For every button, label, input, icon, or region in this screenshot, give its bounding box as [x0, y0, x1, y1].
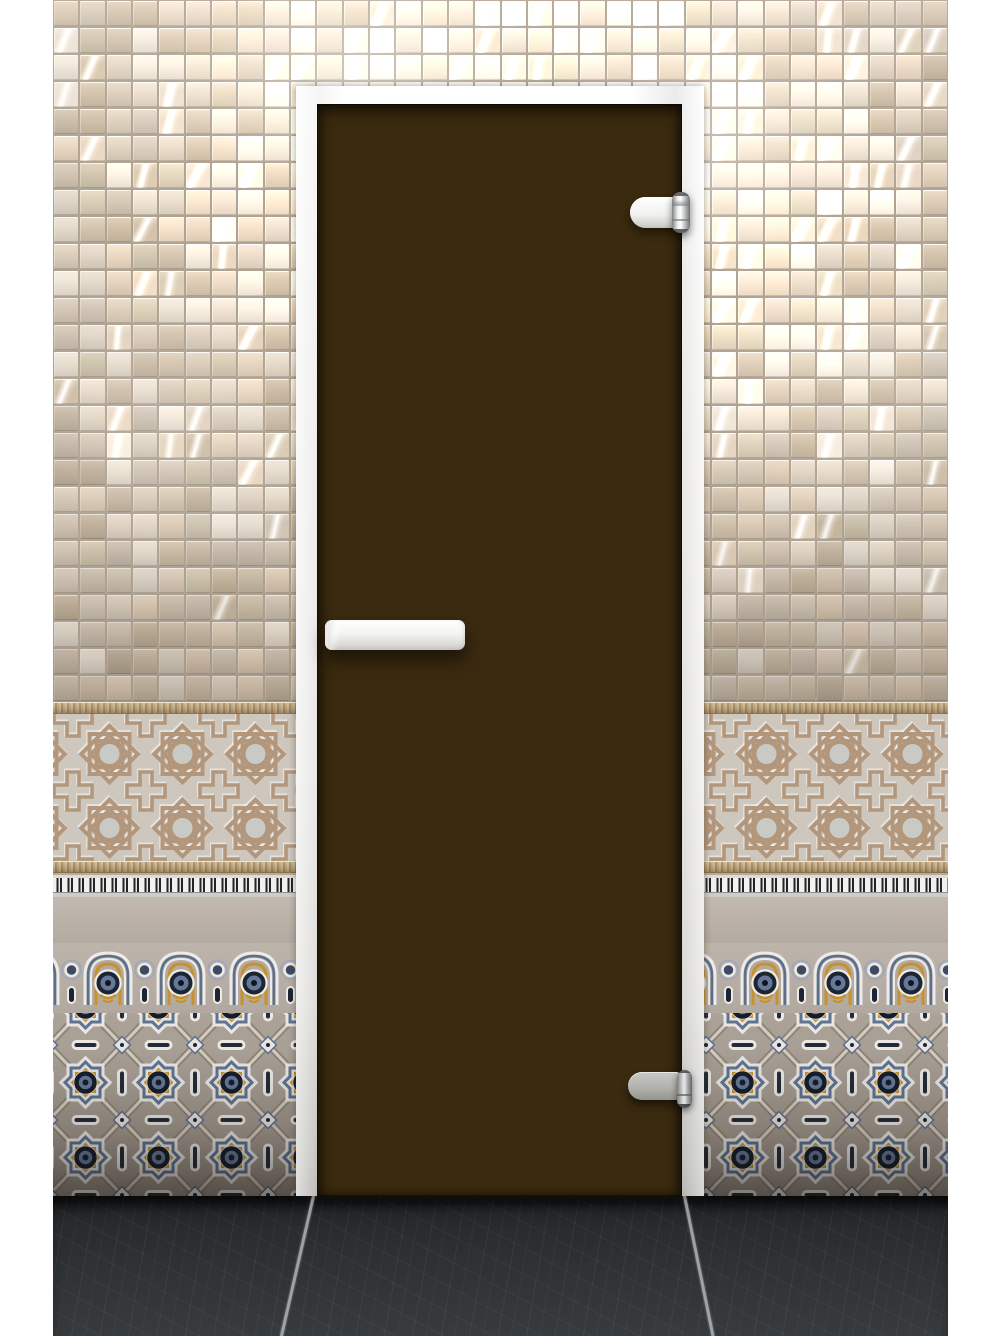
mosaic-tile [80, 82, 104, 107]
mosaic-tile [344, 28, 368, 53]
mosaic-tile [923, 514, 947, 539]
mosaic-tile [896, 109, 920, 134]
mosaic-tile [107, 217, 131, 242]
mosaic-tile [265, 352, 289, 377]
mosaic-tile [817, 649, 841, 674]
mosaic-tile [765, 55, 789, 80]
mosaic-tile [738, 406, 762, 431]
mosaic-tile [133, 298, 157, 323]
mosaic-tile [686, 1, 710, 26]
mosaic-tile [107, 514, 131, 539]
mosaic-tile [186, 352, 210, 377]
mosaic-tile [870, 28, 894, 53]
mosaic-tile [817, 568, 841, 593]
interior-photo [53, 0, 948, 1336]
mosaic-tile [107, 541, 131, 566]
mosaic-tile [844, 406, 868, 431]
mosaic-tile [133, 487, 157, 512]
mosaic-tile [738, 1, 762, 26]
mosaic-tile [54, 217, 78, 242]
mosaic-tile [923, 460, 947, 485]
mosaic-tile [817, 163, 841, 188]
glass-door [296, 86, 704, 1196]
mosaic-tile [107, 1, 131, 26]
mosaic-tile [212, 622, 236, 647]
mosaic-tile [54, 163, 78, 188]
mosaic-tile [80, 55, 104, 80]
mosaic-tile [765, 163, 789, 188]
mosaic-tile [159, 433, 183, 458]
mosaic-tile [238, 676, 262, 701]
mosaic-tile [738, 676, 762, 701]
mosaic-tile [54, 352, 78, 377]
mosaic-tile [791, 28, 815, 53]
hinge-top-barrel [672, 192, 690, 233]
mosaic-tile [54, 1, 78, 26]
mosaic-tile [212, 163, 236, 188]
mosaic-tile [133, 55, 157, 80]
mosaic-tile [712, 136, 736, 161]
mosaic-tile [712, 676, 736, 701]
mosaic-tile [844, 568, 868, 593]
mosaic-tile [159, 514, 183, 539]
mosaic-tile [238, 1, 262, 26]
mosaic-tile [870, 514, 894, 539]
mosaic-tile [738, 622, 762, 647]
hinge-top-clamp [630, 197, 676, 228]
mosaic-tile [817, 379, 841, 404]
mosaic-tile [238, 271, 262, 296]
slate-floor [53, 1196, 948, 1336]
mosaic-tile [54, 487, 78, 512]
mosaic-tile [712, 1, 736, 26]
mosaic-tile [791, 298, 815, 323]
mosaic-tile [186, 541, 210, 566]
mosaic-tile [791, 190, 815, 215]
mosaic-tile [186, 28, 210, 53]
mosaic-tile [870, 109, 894, 134]
mosaic-tile [712, 514, 736, 539]
mosaic-tile [133, 460, 157, 485]
mosaic-tile [712, 595, 736, 620]
mosaic-tile [870, 676, 894, 701]
mosaic-tile [765, 82, 789, 107]
mosaic-tile [80, 136, 104, 161]
mosaic-tile [317, 1, 341, 26]
mosaic-tile [712, 541, 736, 566]
mosaic-tile [817, 82, 841, 107]
mosaic-tile [712, 460, 736, 485]
mosaic-tile [765, 568, 789, 593]
mosaic-tile [212, 325, 236, 350]
mosaic-tile [54, 379, 78, 404]
mosaic-tile [133, 595, 157, 620]
mosaic-tile [923, 190, 947, 215]
mosaic-tile [765, 460, 789, 485]
mosaic-tile [580, 55, 604, 80]
mosaic-tile [317, 28, 341, 53]
hinge-bottom-clamp [628, 1072, 680, 1100]
mosaic-tile [791, 433, 815, 458]
mosaic-tile [186, 55, 210, 80]
mosaic-tile [159, 676, 183, 701]
mosaic-tile [712, 622, 736, 647]
mosaic-tile [712, 406, 736, 431]
photo-canvas [0, 0, 1000, 1340]
mosaic-tile [791, 460, 815, 485]
mosaic-tile [738, 487, 762, 512]
mosaic-tile [817, 541, 841, 566]
mosaic-tile [80, 271, 104, 296]
mosaic-tile [896, 460, 920, 485]
mosaic-tile [186, 649, 210, 674]
mosaic-tile [502, 55, 526, 80]
mosaic-tile [238, 622, 262, 647]
mosaic-tile [791, 676, 815, 701]
mosaic-tile [238, 55, 262, 80]
mosaic-tile [265, 514, 289, 539]
mosaic-tile [817, 298, 841, 323]
mosaic-tile [54, 676, 78, 701]
mosaic-tile [791, 622, 815, 647]
mosaic-tile [791, 352, 815, 377]
mosaic-tile [844, 271, 868, 296]
mosaic-tile [580, 28, 604, 53]
mosaic-tile [186, 595, 210, 620]
mosaic-tile [633, 1, 657, 26]
mosaic-tile [528, 28, 552, 53]
mosaic-tile [54, 568, 78, 593]
mosaic-tile [133, 622, 157, 647]
mosaic-tile [80, 244, 104, 269]
mosaic-tile [291, 55, 315, 80]
mosaic-tile [133, 28, 157, 53]
mosaic-tile [896, 433, 920, 458]
mosaic-tile [238, 595, 262, 620]
mosaic-tile [923, 433, 947, 458]
mosaic-tile [370, 1, 394, 26]
mosaic-tile [896, 136, 920, 161]
mosaic-tile [133, 514, 157, 539]
mosaic-tile [712, 379, 736, 404]
mosaic-tile [54, 190, 78, 215]
mosaic-tile [817, 28, 841, 53]
mosaic-tile [265, 298, 289, 323]
mosaic-tile [265, 1, 289, 26]
mosaic-tile [212, 82, 236, 107]
mosaic-tile [844, 514, 868, 539]
mosaic-tile [686, 28, 710, 53]
mosaic-tile [738, 433, 762, 458]
mosaic-tile [896, 649, 920, 674]
mosaic-tile [212, 649, 236, 674]
mosaic-tile [791, 649, 815, 674]
mosaic-tile [80, 190, 104, 215]
mosaic-tile [923, 217, 947, 242]
mosaic-tile [107, 28, 131, 53]
mosaic-tile [870, 82, 894, 107]
mosaic-tile [923, 379, 947, 404]
mosaic-tile [738, 28, 762, 53]
mosaic-tile [896, 1, 920, 26]
mosaic-tile [765, 595, 789, 620]
mosaic-tile [159, 28, 183, 53]
mosaic-tile [265, 541, 289, 566]
mosaic-tile [107, 298, 131, 323]
mosaic-tile [159, 136, 183, 161]
mosaic-tile [212, 568, 236, 593]
mosaic-tile [186, 487, 210, 512]
mosaic-tile [133, 82, 157, 107]
mosaic-tile [238, 649, 262, 674]
mosaic-tile [212, 460, 236, 485]
mosaic-tile [212, 28, 236, 53]
mosaic-tile [870, 271, 894, 296]
mosaic-tile [54, 109, 78, 134]
mosaic-tile [80, 298, 104, 323]
mosaic-tile [738, 109, 762, 134]
mosaic-tile [923, 82, 947, 107]
mosaic-tile [896, 595, 920, 620]
mosaic-tile [159, 325, 183, 350]
mosaic-tile [159, 109, 183, 134]
mosaic-tile [212, 352, 236, 377]
mosaic-tile [765, 649, 789, 674]
mosaic-tile [107, 379, 131, 404]
mosaic-tile [238, 244, 262, 269]
mosaic-tile [80, 379, 104, 404]
floor-grout-line-right [683, 1196, 714, 1336]
mosaic-tile [870, 406, 894, 431]
mosaic-tile [712, 487, 736, 512]
mosaic-tile [107, 163, 131, 188]
mosaic-tile [186, 163, 210, 188]
mosaic-tile [738, 190, 762, 215]
mosaic-tile [896, 352, 920, 377]
mosaic-tile [186, 379, 210, 404]
mosaic-tile [265, 622, 289, 647]
mosaic-tile [791, 595, 815, 620]
mosaic-tile [423, 55, 447, 80]
mosaic-tile [765, 244, 789, 269]
mosaic-tile [186, 190, 210, 215]
mosaic-tile [765, 352, 789, 377]
door-handle [325, 620, 465, 650]
mosaic-tile [54, 514, 78, 539]
mosaic-tile [738, 217, 762, 242]
mosaic-tile [896, 379, 920, 404]
mosaic-tile [844, 298, 868, 323]
mosaic-tile [80, 541, 104, 566]
mosaic-tile [765, 622, 789, 647]
mosaic-tile [844, 460, 868, 485]
mosaic-tile [265, 271, 289, 296]
mosaic-tile [238, 379, 262, 404]
mosaic-tile [765, 190, 789, 215]
mosaic-tile [765, 514, 789, 539]
mosaic-tile [107, 487, 131, 512]
mosaic-tile [765, 109, 789, 134]
mosaic-tile [844, 55, 868, 80]
mosaic-tile [107, 190, 131, 215]
mosaic-tile [159, 352, 183, 377]
mosaic-tile [844, 433, 868, 458]
mosaic-tile [265, 28, 289, 53]
mosaic-tile [923, 55, 947, 80]
mosaic-tile [238, 325, 262, 350]
mosaic-tile [54, 433, 78, 458]
mosaic-tile [870, 487, 894, 512]
mosaic-tile [107, 649, 131, 674]
mosaic-tile [54, 460, 78, 485]
mosaic-tile [896, 622, 920, 647]
mosaic-tile [212, 406, 236, 431]
mosaic-tile [238, 352, 262, 377]
mosaic-tile [870, 541, 894, 566]
mosaic-tile [844, 190, 868, 215]
mosaic-tile [633, 28, 657, 53]
mosaic-tile [133, 352, 157, 377]
mosaic-tile [107, 244, 131, 269]
mosaic-tile [870, 352, 894, 377]
mosaic-tile [633, 55, 657, 80]
mosaic-tile [844, 676, 868, 701]
mosaic-tile [159, 1, 183, 26]
mosaic-tile [817, 514, 841, 539]
mosaic-tile [817, 271, 841, 296]
mosaic-tile [212, 190, 236, 215]
mosaic-tile [449, 55, 473, 80]
mosaic-tile [80, 109, 104, 134]
mosaic-tile [133, 271, 157, 296]
mosaic-tile [265, 136, 289, 161]
mosaic-tile [896, 676, 920, 701]
mosaic-tile [554, 1, 578, 26]
mosaic-tile [133, 541, 157, 566]
mosaic-tile [738, 352, 762, 377]
mosaic-tile [765, 136, 789, 161]
mosaic-tile [844, 82, 868, 107]
mosaic-tile [475, 28, 499, 53]
mosaic-tile [844, 595, 868, 620]
mosaic-tile [765, 676, 789, 701]
mosaic-tile [817, 595, 841, 620]
mosaic-tile [844, 28, 868, 53]
mosaic-tile [923, 406, 947, 431]
mosaic-tile [291, 28, 315, 53]
mosaic-tile [133, 325, 157, 350]
mosaic-tile [396, 55, 420, 80]
mosaic-tile [54, 298, 78, 323]
mosaic-tile [238, 460, 262, 485]
mosaic-tile [54, 595, 78, 620]
mosaic-tile [238, 433, 262, 458]
mosaic-tile [923, 163, 947, 188]
mosaic-tile [186, 460, 210, 485]
mosaic-tile [212, 109, 236, 134]
mosaic-tile [765, 541, 789, 566]
mosaic-tile [738, 244, 762, 269]
mosaic-tile [896, 163, 920, 188]
mosaic-tile [738, 595, 762, 620]
mosaic-tile [238, 163, 262, 188]
mosaic-tile [265, 190, 289, 215]
mosaic-tile [238, 514, 262, 539]
mosaic-tile [817, 325, 841, 350]
mosaic-tile [186, 109, 210, 134]
mosaic-tile [107, 568, 131, 593]
mosaic-tile [133, 379, 157, 404]
hinge-bottom-barrel [677, 1070, 692, 1108]
mosaic-tile [817, 622, 841, 647]
mosaic-tile [738, 271, 762, 296]
mosaic-tile [212, 217, 236, 242]
mosaic-tile [265, 244, 289, 269]
mosaic-tile [212, 136, 236, 161]
mosaic-tile [712, 352, 736, 377]
mosaic-tile [817, 136, 841, 161]
mosaic-tile [896, 82, 920, 107]
mosaic-tile [133, 244, 157, 269]
mosaic-tile [844, 622, 868, 647]
mosaic-tile [212, 244, 236, 269]
mosaic-tile [844, 1, 868, 26]
mosaic-tile [212, 298, 236, 323]
mosaic-tile [844, 325, 868, 350]
mosaic-tile [265, 487, 289, 512]
mosaic-tile [265, 325, 289, 350]
mosaic-tile [791, 55, 815, 80]
mosaic-tile [107, 595, 131, 620]
mosaic-tile [449, 28, 473, 53]
mosaic-tile [712, 271, 736, 296]
mosaic-tile [870, 55, 894, 80]
mosaic-tile [265, 568, 289, 593]
mosaic-tile [791, 217, 815, 242]
mosaic-tile [923, 28, 947, 53]
mosaic-tile [712, 649, 736, 674]
mosaic-tile [133, 109, 157, 134]
mosaic-tile [54, 271, 78, 296]
mosaic-tile [738, 649, 762, 674]
mosaic-tile [80, 352, 104, 377]
mosaic-tile [80, 568, 104, 593]
mosaic-tile [896, 406, 920, 431]
mosaic-tile [265, 406, 289, 431]
mosaic-tile [159, 622, 183, 647]
mosaic-tile [133, 217, 157, 242]
mosaic-tile [923, 676, 947, 701]
mosaic-tile [133, 406, 157, 431]
mosaic-tile [896, 190, 920, 215]
mosaic-tile [817, 433, 841, 458]
mosaic-tile [896, 244, 920, 269]
mosaic-tile [80, 28, 104, 53]
mosaic-tile [738, 82, 762, 107]
mosaic-tile [870, 649, 894, 674]
mosaic-tile [344, 1, 368, 26]
mosaic-tile [607, 55, 631, 80]
mosaic-tile [791, 109, 815, 134]
mosaic-tile [186, 433, 210, 458]
mosaic-tile [844, 244, 868, 269]
mosaic-tile [396, 1, 420, 26]
mosaic-tile [54, 325, 78, 350]
mosaic-tile [923, 271, 947, 296]
mosaic-tile [712, 190, 736, 215]
mosaic-tile [844, 136, 868, 161]
mosaic-tile [80, 433, 104, 458]
